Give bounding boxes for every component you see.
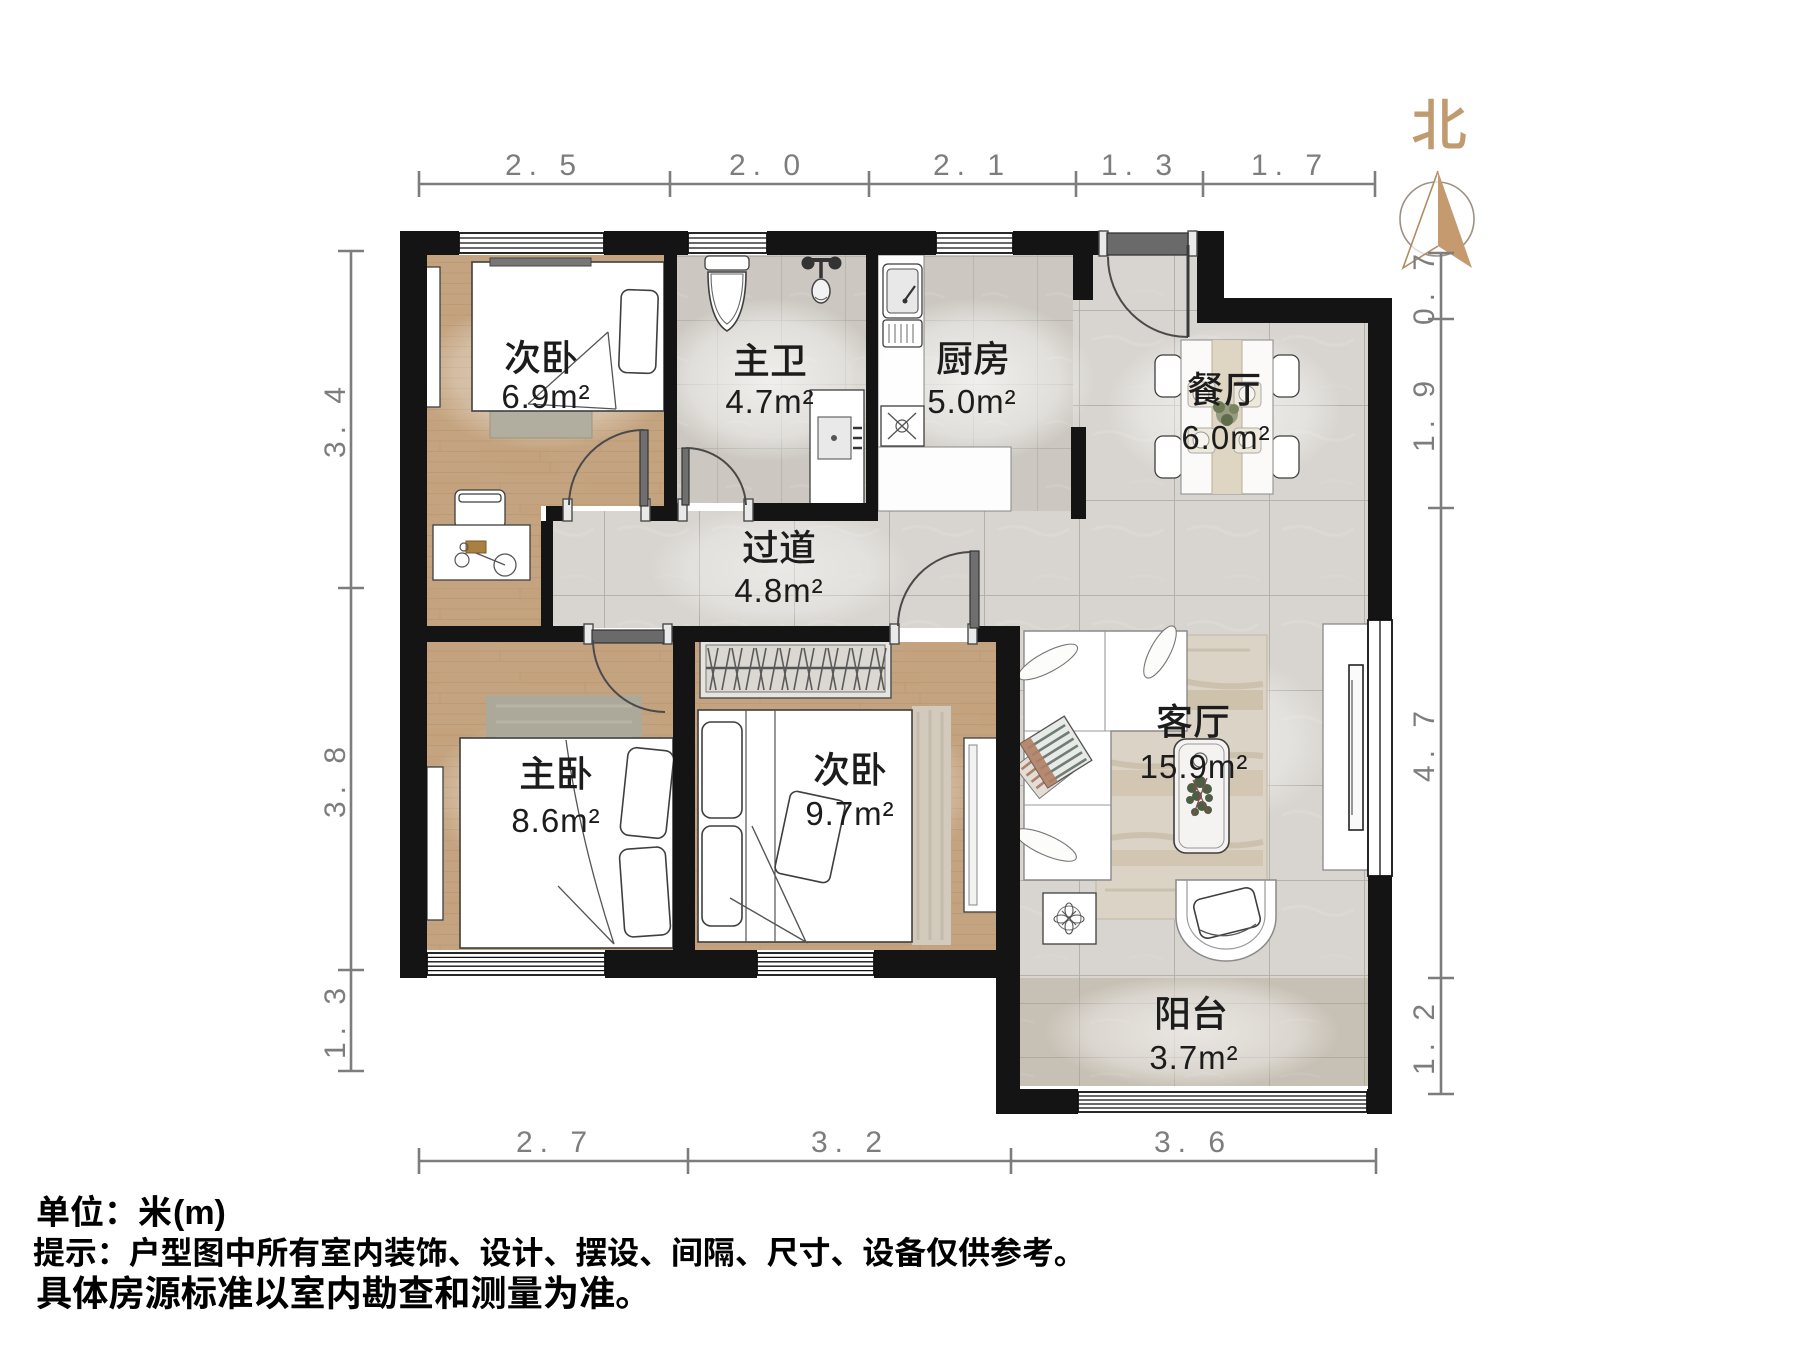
svg-text:6.0m²: 6.0m² bbox=[1181, 419, 1270, 456]
svg-text:(m): (m) bbox=[173, 1194, 226, 1232]
svg-text:2. 1: 2. 1 bbox=[933, 149, 1011, 182]
svg-text:15.9m²: 15.9m² bbox=[1140, 748, 1249, 785]
svg-text:6.9m²: 6.9m² bbox=[501, 378, 590, 415]
svg-text:3.7m²: 3.7m² bbox=[1149, 1039, 1238, 1076]
svg-text:3. 2: 3. 2 bbox=[811, 1126, 889, 1159]
svg-text:1. 7: 1. 7 bbox=[1251, 149, 1329, 182]
svg-text:3. 6: 3. 6 bbox=[1154, 1126, 1232, 1159]
svg-text:9.7m²: 9.7m² bbox=[805, 795, 894, 832]
svg-text:1. 3: 1. 3 bbox=[319, 981, 352, 1059]
svg-text:4.7m²: 4.7m² bbox=[725, 383, 814, 420]
svg-text:8.6m²: 8.6m² bbox=[511, 802, 600, 839]
svg-text:1. 2: 1. 2 bbox=[1408, 997, 1441, 1075]
svg-text:0. 7: 0. 7 bbox=[1408, 247, 1441, 325]
svg-text:2. 5: 2. 5 bbox=[505, 149, 583, 182]
svg-text:2. 0: 2. 0 bbox=[729, 149, 807, 182]
svg-text:4. 7: 4. 7 bbox=[1408, 704, 1441, 782]
svg-text:3. 8: 3. 8 bbox=[319, 740, 352, 818]
svg-text:2. 7: 2. 7 bbox=[516, 1126, 594, 1159]
svg-text:3. 4: 3. 4 bbox=[319, 380, 352, 458]
svg-text:1. 3: 1. 3 bbox=[1101, 149, 1179, 182]
svg-text:4.8m²: 4.8m² bbox=[734, 572, 823, 609]
svg-text:1. 9: 1. 9 bbox=[1408, 374, 1441, 452]
svg-text:5.0m²: 5.0m² bbox=[927, 383, 1016, 420]
